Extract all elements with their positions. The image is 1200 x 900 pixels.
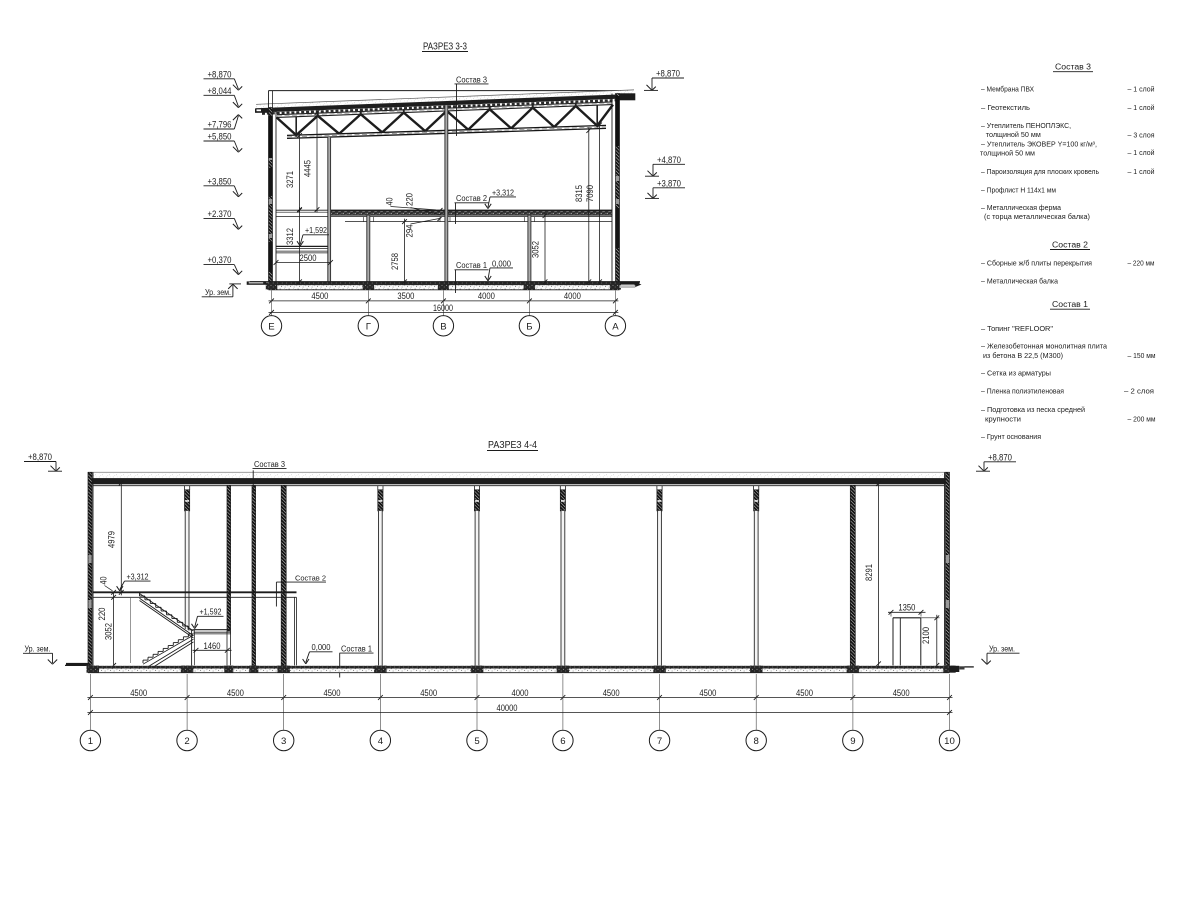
svg-text:Состав 3: Состав 3: [1055, 63, 1092, 72]
svg-text:Ур. зем.: Ур. зем.: [205, 287, 231, 297]
svg-text:– 1 слой: – 1 слой: [1128, 85, 1155, 94]
svg-text:толщиной 50 мм: толщиной 50 мм: [980, 148, 1035, 157]
svg-text:220: 220: [404, 193, 414, 206]
svg-text:+2.370: +2.370: [208, 209, 232, 219]
svg-text:– Пароизоляция для плоских кро: – Пароизоляция для плоских кровель: [981, 167, 1099, 176]
svg-text:4000: 4000: [564, 291, 581, 301]
svg-text:2500: 2500: [300, 253, 317, 263]
svg-text:0,000: 0,000: [312, 642, 331, 652]
svg-text:– Геотекстиль: – Геотекстиль: [981, 103, 1030, 112]
svg-text:4500: 4500: [130, 688, 147, 698]
svg-text:4500: 4500: [699, 688, 716, 698]
svg-text:– 200 мм: – 200 мм: [1128, 414, 1156, 423]
svg-text:+4,870: +4,870: [657, 155, 681, 165]
svg-text:– 1 слой: – 1 слой: [1128, 167, 1155, 176]
svg-text:10: 10: [944, 736, 955, 747]
svg-text:+8,044: +8,044: [208, 86, 232, 96]
svg-text:– 1 слой: – 1 слой: [1128, 103, 1155, 112]
svg-text:– Пленка полиэтиленовая: – Пленка полиэтиленовая: [981, 387, 1064, 396]
svg-text:Состав 2: Состав 2: [1052, 240, 1089, 249]
svg-text:1: 1: [88, 736, 93, 747]
svg-text:+7,796: +7,796: [208, 120, 232, 130]
svg-text:– Грунт основания: – Грунт основания: [981, 432, 1041, 441]
svg-text:Состав 2: Состав 2: [295, 574, 326, 583]
svg-text:+5,850: +5,850: [208, 132, 232, 142]
svg-text:крупности: крупности: [985, 414, 1021, 423]
svg-text:Г: Г: [366, 322, 372, 333]
svg-text:+3,870: +3,870: [657, 178, 681, 188]
svg-text:Ур. зем.: Ур. зем.: [25, 644, 51, 654]
svg-text:+3,850: +3,850: [208, 176, 232, 186]
svg-text:+8,870: +8,870: [988, 452, 1012, 462]
svg-text:– 220 мм: – 220 мм: [1128, 258, 1155, 267]
svg-text:4000: 4000: [478, 291, 495, 301]
svg-text:4: 4: [378, 736, 384, 747]
svg-text:3312: 3312: [285, 228, 295, 245]
svg-text:Состав 3: Состав 3: [254, 460, 285, 469]
svg-text:2758: 2758: [390, 253, 400, 270]
svg-text:толщиной 50 мм: толщиной 50 мм: [986, 130, 1041, 139]
svg-text:+1,592: +1,592: [200, 607, 222, 617]
svg-text:4500: 4500: [324, 688, 341, 698]
svg-text:– Металлическая ферма: – Металлическая ферма: [981, 203, 1062, 212]
svg-text:+8,870: +8,870: [28, 452, 52, 462]
svg-text:+8,870: +8,870: [656, 69, 680, 79]
svg-text:4000: 4000: [512, 688, 529, 698]
svg-text:+3,312: +3,312: [127, 572, 149, 582]
svg-text:Состав 1: Состав 1: [1052, 300, 1089, 309]
svg-text:220: 220: [97, 608, 107, 621]
svg-text:3500: 3500: [397, 291, 414, 301]
svg-text:7: 7: [657, 736, 662, 747]
svg-text:– Утеплитель ПЕНОПЛЭКС,: – Утеплитель ПЕНОПЛЭКС,: [981, 121, 1071, 130]
svg-text:40: 40: [384, 198, 394, 206]
svg-text:В: В: [440, 322, 446, 333]
svg-text:4445: 4445: [302, 160, 312, 177]
svg-text:– Профлист Н 114х1 мм: – Профлист Н 114х1 мм: [981, 185, 1056, 194]
svg-text:5: 5: [474, 736, 479, 747]
svg-text:РАЗРЕЗ 3-3: РАЗРЕЗ 3-3: [423, 41, 467, 53]
svg-text:Е: Е: [268, 322, 274, 333]
svg-text:+8,870: +8,870: [208, 69, 232, 79]
svg-text:3: 3: [281, 736, 286, 747]
svg-text:40000: 40000: [497, 703, 518, 713]
svg-text:– Утеплитель ЭКОВЕР Y=100 кг/м: – Утеплитель ЭКОВЕР Y=100 кг/м³,: [981, 140, 1097, 149]
svg-text:– 3 слоя: – 3 слоя: [1128, 130, 1155, 139]
svg-text:– 2 слоя: – 2 слоя: [1124, 387, 1154, 396]
svg-text:Состав 1: Состав 1: [456, 261, 487, 270]
svg-text:– Железобетонная монолитная п: – Железобетонная монолитная плита: [981, 342, 1108, 351]
svg-text:4500: 4500: [893, 688, 910, 698]
svg-text:1460: 1460: [204, 641, 221, 651]
svg-text:– 150 мм: – 150 мм: [1128, 351, 1156, 360]
svg-text:294: 294: [404, 225, 414, 238]
svg-text:3052: 3052: [530, 241, 540, 258]
svg-text:9: 9: [850, 736, 855, 747]
svg-text:2: 2: [184, 736, 189, 747]
svg-text:6: 6: [560, 736, 565, 747]
svg-text:40: 40: [98, 577, 108, 585]
svg-text:– Мембрана ПВХ: – Мембрана ПВХ: [981, 85, 1034, 94]
svg-text:7090: 7090: [585, 185, 595, 202]
svg-text:Б: Б: [526, 322, 532, 333]
svg-text:Ур. зем.: Ур. зем.: [989, 644, 1015, 654]
svg-text:– Сборные ж/б плиты перекрытия: – Сборные ж/б плиты перекрытия: [981, 258, 1092, 267]
svg-text:– Топинг "REFLOOR": – Топинг "REFLOOR": [981, 324, 1053, 333]
svg-text:+3,312: +3,312: [492, 187, 514, 197]
svg-text:4500: 4500: [603, 688, 620, 698]
svg-text:16000: 16000: [433, 303, 453, 313]
svg-text:из бетона В 22,5 (М300): из бетона В 22,5 (М300): [983, 351, 1063, 360]
svg-text:3271: 3271: [285, 171, 295, 188]
svg-text:+1,592: +1,592: [305, 225, 327, 235]
svg-text:4500: 4500: [311, 291, 328, 301]
svg-text:– Металлическая балка: – Металлическая балка: [981, 276, 1059, 285]
svg-text:8315: 8315: [574, 185, 584, 202]
svg-text:Состав 2: Состав 2: [456, 194, 487, 203]
svg-text:Состав 3: Состав 3: [456, 75, 487, 84]
svg-text:2100: 2100: [921, 627, 931, 644]
svg-text:4500: 4500: [796, 688, 813, 698]
svg-text:А: А: [612, 322, 619, 333]
svg-text:8: 8: [754, 736, 759, 747]
svg-text:4500: 4500: [420, 688, 437, 698]
svg-text:1350: 1350: [898, 603, 915, 613]
svg-text:(с торца металлическая балка): (с торца металлическая балка): [984, 212, 1090, 221]
svg-text:4979: 4979: [107, 531, 117, 548]
svg-text:– 1 слой: – 1 слой: [1128, 148, 1155, 157]
svg-text:0,000: 0,000: [492, 258, 511, 268]
svg-text:– Подготовка из песка средней: – Подготовка из песка средней: [981, 405, 1085, 414]
svg-text:3052: 3052: [103, 623, 113, 640]
svg-text:4500: 4500: [227, 688, 244, 698]
svg-text:+0,370: +0,370: [208, 255, 232, 265]
svg-text:– Сетка из арматуры: – Сетка из арматуры: [981, 369, 1051, 378]
svg-text:РАЗРЕЗ 4-4: РАЗРЕЗ 4-4: [488, 439, 537, 451]
svg-text:Состав 1: Состав 1: [341, 645, 372, 654]
svg-text:8291: 8291: [864, 564, 874, 581]
